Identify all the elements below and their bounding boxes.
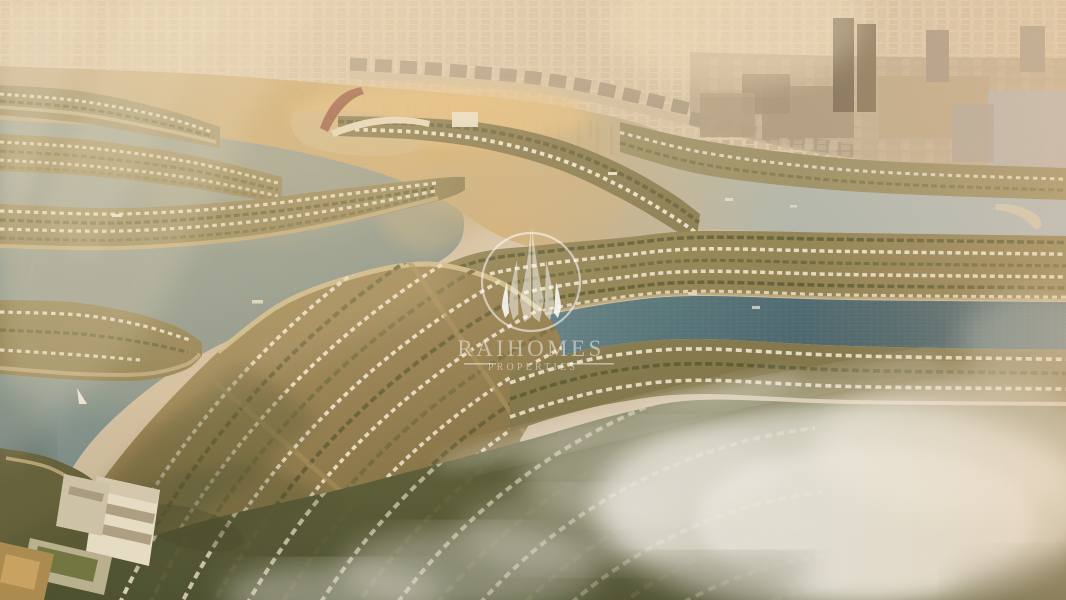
svg-text:RAIHOMES: RAIHOMES — [457, 336, 604, 361]
svg-text:PROPERTIES: PROPERTIES — [488, 362, 578, 373]
